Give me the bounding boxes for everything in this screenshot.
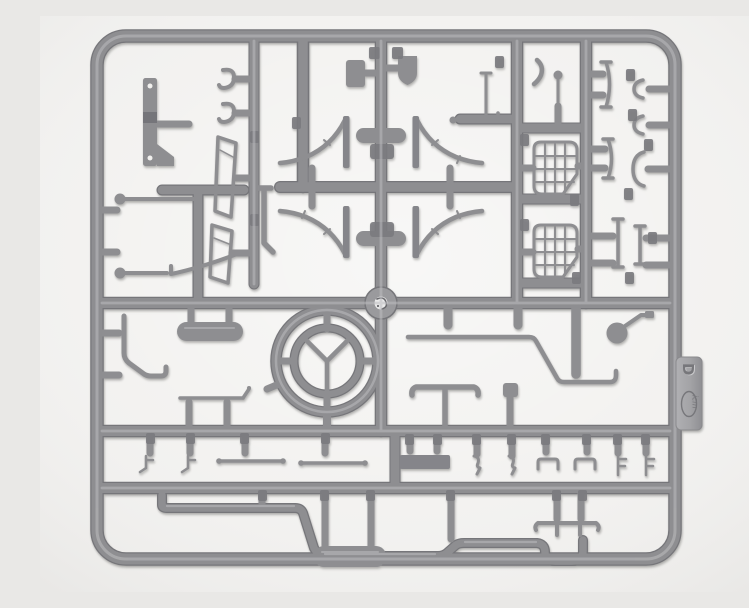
muffler [314,546,386,567]
lever-ball-2 [115,268,126,279]
brand-logo-text: icm [691,395,700,409]
lever-ball-1 [115,194,126,205]
frame-blade-lr [413,206,420,258]
sprue-photo: D D icm [40,16,749,592]
shift-knob [554,71,563,80]
strap-hole-top [148,84,153,89]
frame-blade-ul [343,116,350,168]
frame-blade-ll [343,206,350,258]
tie-rod-1-end-l [216,458,222,464]
tank-cylinder [177,322,243,341]
seat-paddle-left [346,60,365,87]
strap-hole-bottom [148,156,153,161]
pedal-ball-b [450,117,457,124]
chassis-strap-band [143,112,157,123]
floor-plate [400,455,450,469]
pedal-ball-a [483,114,489,120]
pad-part [503,383,518,397]
tab-letter: D [679,363,697,375]
crank-flag [645,311,654,318]
horn-ball [607,323,628,344]
frame-blade-ur [413,116,420,168]
letter-tab: D D icm [676,357,702,430]
tie-rod-2-end-l [298,460,304,466]
tie-rod-1-end-r [280,458,286,464]
priming-rod-tip [247,386,251,390]
tie-rod-2-end-r [362,460,368,466]
